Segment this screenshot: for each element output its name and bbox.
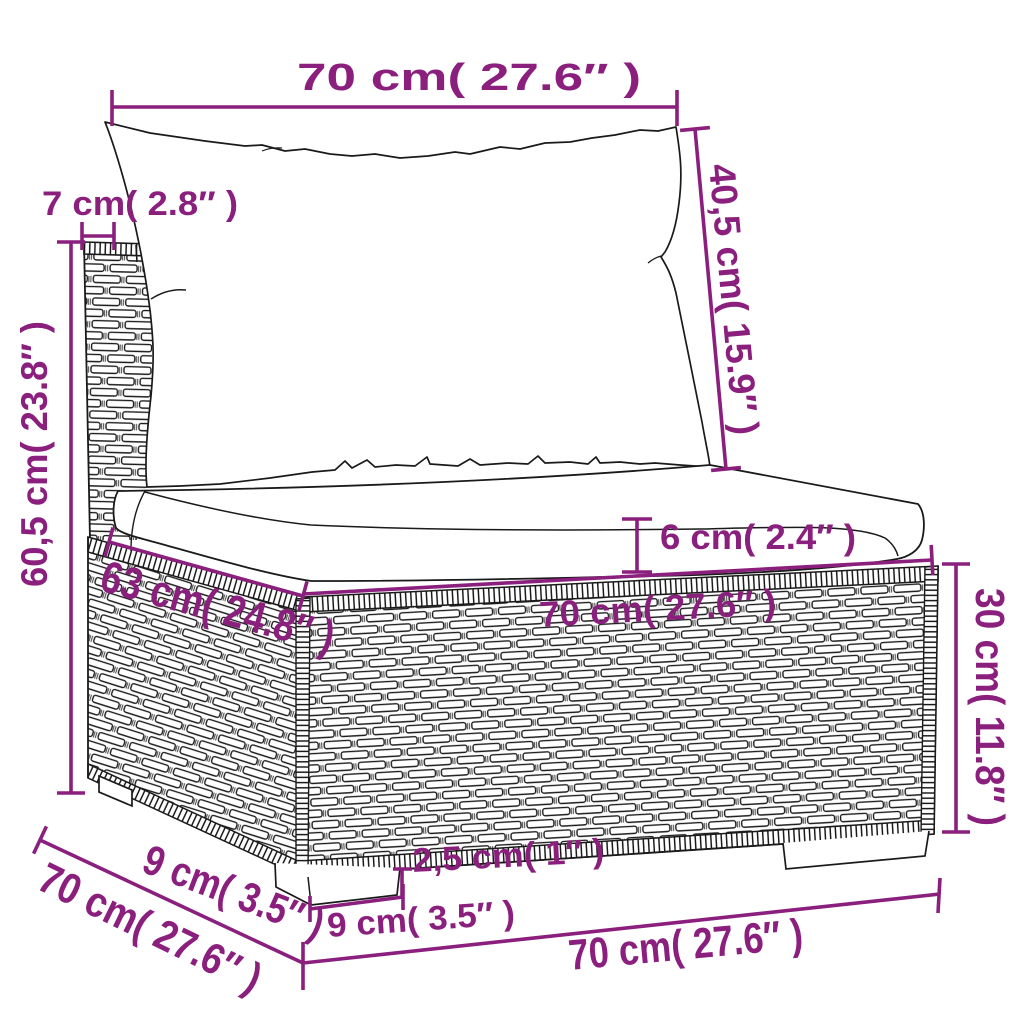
svg-text:6 cm( 2.4″ ): 6 cm( 2.4″ ) — [660, 518, 856, 557]
svg-text:7 cm( 2.8″ ): 7 cm( 2.8″ ) — [42, 185, 238, 223]
svg-text:30 cm( 11.8″ ): 30 cm( 11.8″ ) — [967, 588, 1013, 826]
svg-text:70 cm( 27.6″ ): 70 cm( 27.6″ ) — [297, 57, 641, 99]
svg-text:60,5 cm( 23.8″ ): 60,5 cm( 23.8″ ) — [14, 321, 55, 587]
